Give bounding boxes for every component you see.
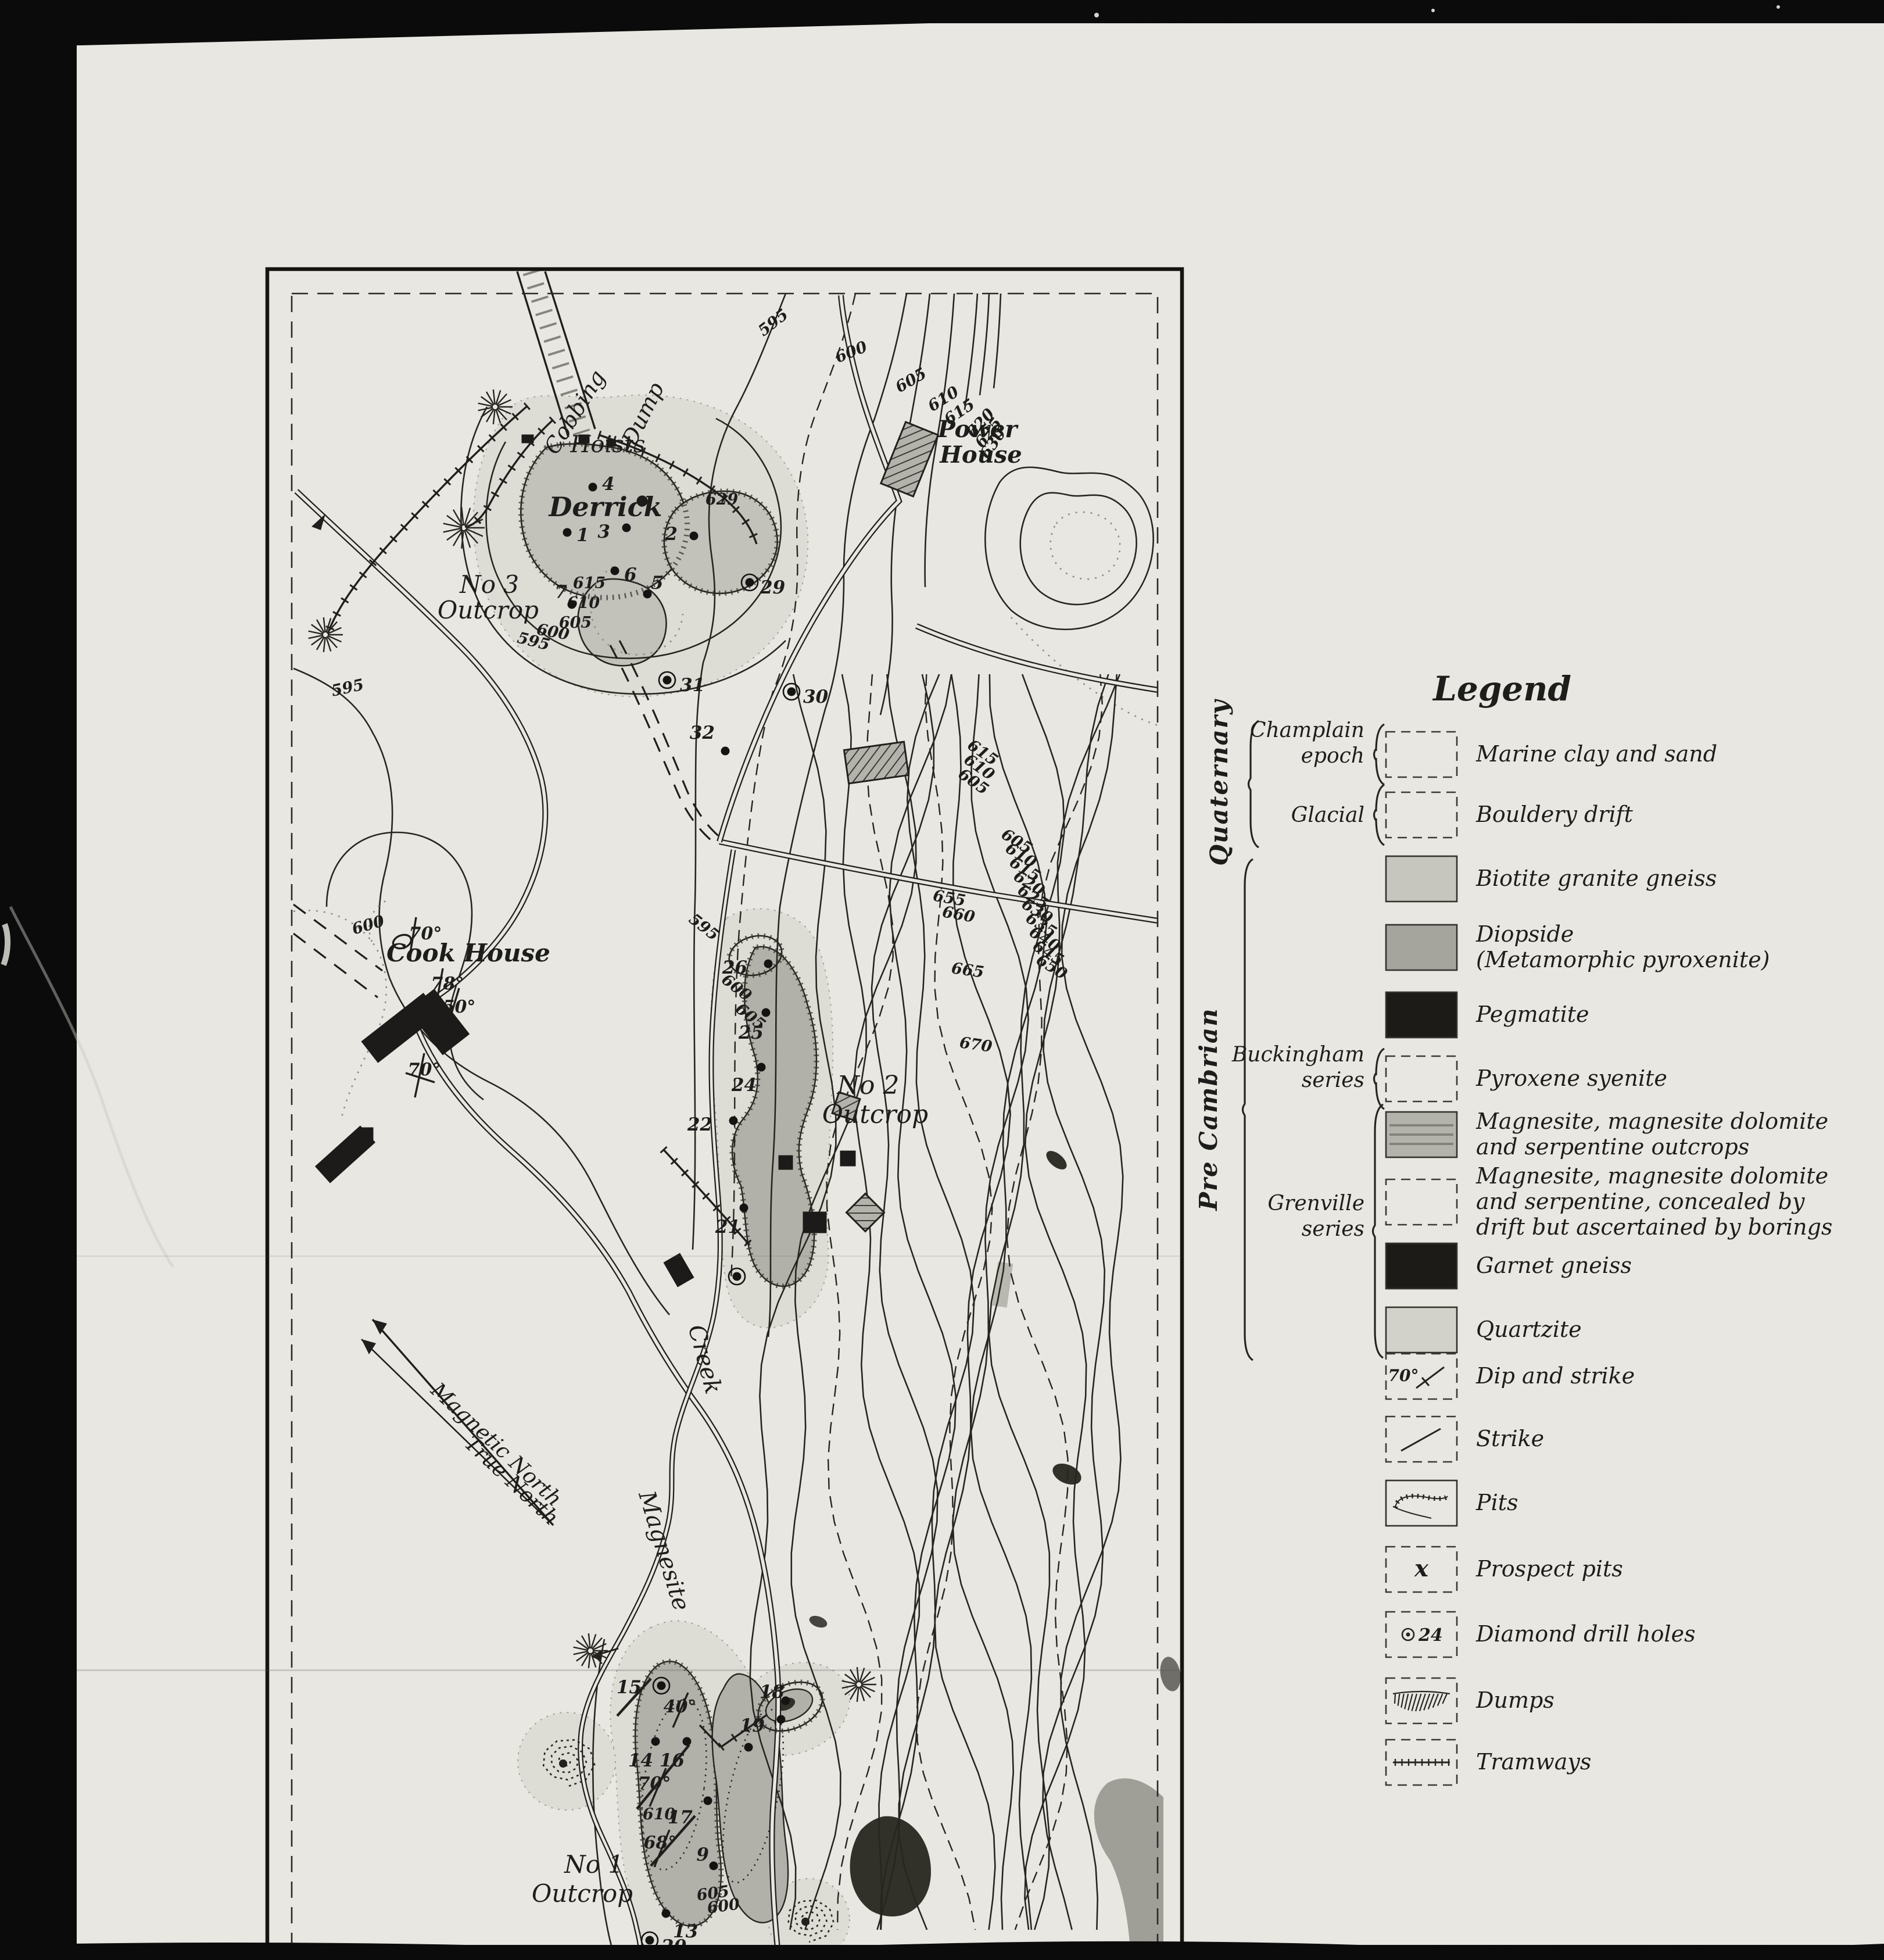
legend-era-label: Pre Cambrian: [1194, 1007, 1223, 1211]
legend-item-label: (Metamorphic pyroxenite): [1476, 947, 1770, 972]
legend-item-label: Magnesite, magnesite dolomite: [1475, 1108, 1828, 1134]
drill-hole-number: 5: [651, 573, 664, 593]
legend-dip-value: 70°: [1388, 1366, 1419, 1385]
legend-swatch: [1386, 1179, 1457, 1225]
drill-hole-number: 15: [617, 1677, 642, 1698]
drill-hole-number: 21: [715, 1217, 740, 1237]
drill-hole-dot: [729, 1117, 738, 1125]
legend-item-label: Diopside: [1475, 921, 1574, 947]
legend-title: Legend: [1432, 669, 1571, 709]
pit-center-dot: [801, 1918, 810, 1926]
place-label: No 1: [564, 1850, 624, 1879]
legend-group-label: series: [1302, 1217, 1364, 1241]
drill-hole-dot: [744, 1743, 753, 1752]
legend-group-label: Glacial: [1291, 803, 1364, 827]
drill-hole-number: 18: [760, 1682, 785, 1703]
drill-hole-number: 22: [687, 1114, 712, 1135]
drill-hole-number: 32: [690, 723, 715, 743]
place-label: No 3: [459, 570, 519, 599]
legend-group-label: Grenville: [1267, 1192, 1364, 1215]
legend-item-label: and serpentine, concealed by: [1476, 1189, 1805, 1214]
drill-hole: [744, 1743, 753, 1752]
legend-item-label: Quartzite: [1476, 1317, 1582, 1342]
drill-hole-number: 17: [668, 1807, 693, 1828]
legend-swatch: [1386, 992, 1457, 1038]
dip-angle-label: 40°: [664, 1697, 697, 1717]
legend-item-label: Bouldery drift: [1475, 802, 1634, 827]
paper: [77, 23, 1884, 1948]
legend-group-label: series: [1302, 1068, 1364, 1092]
drill-hole-dot: [764, 960, 773, 968]
contour-label: 615: [573, 574, 606, 592]
dip-angle-label: 70°: [408, 1060, 441, 1080]
legend-item-label: and serpentine outcrops: [1476, 1134, 1749, 1160]
drill-hole-number: 6: [624, 564, 637, 585]
legend-group-label: Buckingham: [1231, 1043, 1364, 1067]
legend-item-label: Magnesite, magnesite dolomite: [1475, 1163, 1828, 1189]
place-label: House: [939, 441, 1022, 468]
drill-hole-dot: [787, 688, 796, 696]
legend-item-label: Dip and strike: [1475, 1363, 1635, 1389]
legend-swatch: [1386, 1056, 1457, 1101]
dip-angle-label: 78°: [431, 974, 464, 994]
drill-hole-dot: [757, 1063, 766, 1072]
legend-swatch: [1386, 925, 1457, 970]
legend-item-label: Strike: [1476, 1426, 1544, 1451]
legend-swatch: [1386, 732, 1457, 777]
scanned-geological-map-page: { "page": { "background": "#0b0b0b", "pa…: [0, 0, 1884, 1958]
legend-group-label: Champlain: [1250, 718, 1364, 742]
drill-hole-dot: [746, 578, 754, 587]
dip-angle-label: 70°: [638, 1773, 671, 1794]
drill-hole-dot: [568, 600, 576, 609]
drill-hole-dot: [622, 524, 631, 532]
contour-label: 629: [705, 491, 739, 509]
legend-item-label: Pits: [1475, 1490, 1518, 1515]
drill-hole-number: 30: [803, 686, 829, 707]
place-label: Derrick: [548, 491, 662, 523]
drill-hole-dot: [662, 1909, 671, 1918]
drill-hole-dot: [710, 1862, 718, 1870]
drill-hole-dot: [777, 1715, 786, 1724]
legend-item-label: Tramways: [1476, 1749, 1591, 1775]
place-label: Power: [937, 416, 1019, 443]
drill-hole-dot: [683, 1737, 692, 1746]
legend-era-label: Quaternary: [1205, 699, 1233, 865]
legend-swatch: [1386, 856, 1457, 902]
drill-hole-number: 7: [554, 582, 567, 603]
drill-hole-number: 9: [696, 1844, 709, 1865]
legend-item-label: Marine clay and sand: [1475, 741, 1717, 767]
drill-hole-dot: [690, 532, 699, 541]
drill-hole-number: 31: [680, 675, 705, 696]
prospect-pit-icon: x: [1414, 1555, 1429, 1582]
drill-hole-number: 24: [731, 1075, 757, 1096]
legend-swatch: [1386, 792, 1457, 838]
drill-hole-sample-number: 24: [1418, 1625, 1443, 1646]
drill-hole-dot: [646, 1936, 654, 1945]
drill-hole-number: 19: [740, 1715, 765, 1736]
drill-hole-dot: [740, 1204, 748, 1213]
legend-swatch: [1386, 1307, 1457, 1353]
drill-hole-number: 14: [628, 1750, 653, 1771]
drill-hole-dot: [611, 567, 619, 575]
drill-hole-dot: [657, 1682, 666, 1690]
dip-angle-label: 70°: [409, 924, 442, 944]
legend-item-label: Pyroxene syenite: [1475, 1065, 1667, 1091]
legend-item-label: Garnet gneiss: [1476, 1253, 1632, 1278]
drill-hole-number: 2: [664, 524, 678, 545]
drill-hole-dot: [563, 528, 572, 537]
drill-hole-dot: [721, 747, 730, 756]
place-label: No 2: [837, 1071, 900, 1100]
legend-item-label: Prospect pits: [1475, 1556, 1623, 1582]
drill-hole-number: 3: [597, 521, 610, 542]
legend-item-label: Pegmatite: [1475, 1002, 1589, 1027]
legend-item-label: Dumps: [1475, 1687, 1555, 1713]
drill-hole-number: 1: [576, 525, 589, 546]
drill-hole-dot: [651, 1737, 660, 1746]
drill-hole-number: 25: [738, 1022, 764, 1043]
drill-hole-number: 26: [722, 957, 747, 978]
place-label: Outcrop: [438, 596, 539, 624]
drill-hole-number: 16: [660, 1750, 685, 1771]
place-label: Outcrop: [532, 1879, 633, 1908]
legend-swatch: [1386, 1678, 1457, 1723]
drill-hole-dot: [589, 483, 597, 492]
drill-hole-dot: [704, 1797, 712, 1805]
legend-swatch: [1386, 1243, 1457, 1289]
legend-item-label: drift but ascertained by borings: [1476, 1214, 1832, 1240]
place-label: Outcrop: [822, 1100, 928, 1129]
drill-hole-number: 29: [760, 577, 785, 598]
legend-item-label: Biotite granite gneiss: [1475, 865, 1717, 891]
drill-hole-dot: [663, 676, 672, 685]
pit-center-dot: [559, 1759, 567, 1768]
dip-angle-label: 68°: [644, 1833, 677, 1853]
drill-hole-dot: [762, 1008, 771, 1017]
legend-item-label: Diamond drill holes: [1475, 1621, 1696, 1647]
dip-angle-label: 50°: [443, 997, 476, 1017]
drill-hole-dot: [733, 1272, 742, 1281]
map-scan: 5956006056106156206256306296156106056005…: [0, 0, 1884, 1958]
legend-group-label: epoch: [1301, 744, 1364, 768]
